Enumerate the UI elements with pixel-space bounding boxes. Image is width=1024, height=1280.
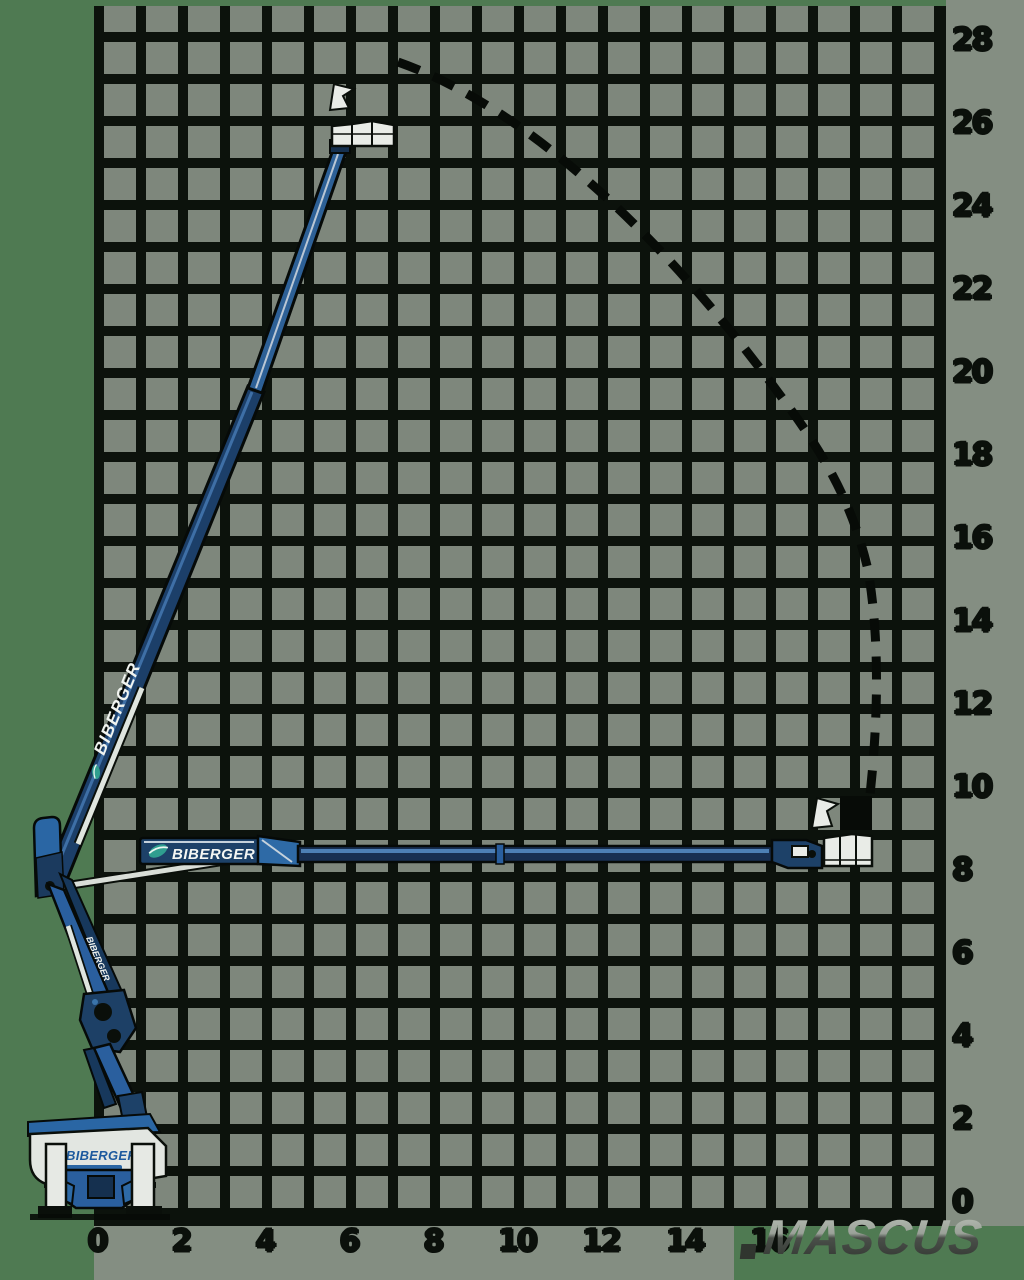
x-axis-label: 2 [151,1224,211,1260]
arm-cylinder [68,926,92,1000]
reach-diagram: 28 26 24 22 20 18 16 14 12 10 8 6 4 2 0 … [0,0,1024,1280]
y-axis-label: 24 [952,186,1018,226]
y-axis-label: 8 [952,850,1018,890]
y-axis-label: 14 [952,601,1018,641]
y-axis-label: 12 [952,684,1018,724]
grid-plot-area [94,6,946,1226]
y-axis-label: 6 [952,933,1018,973]
y-axis-label: 18 [952,435,1018,475]
y-axis-label: 4 [952,1016,1018,1056]
y-axis-label: 20 [952,352,1018,392]
y-axis-label: 28 [952,20,1018,60]
mascus-logo-text: MASCUS [761,1210,985,1266]
turret [34,817,64,898]
y-axis-label: 10 [952,767,1018,807]
x-axis-label: 6 [319,1224,379,1260]
mascus-watermark: MASCUS [739,1210,985,1266]
y-axis-label: 16 [952,518,1018,558]
mascus-dot-icon [740,1244,757,1259]
y-axis-label: 26 [952,103,1018,143]
x-axis-label: 14 [655,1224,715,1260]
x-axis-label: 4 [235,1224,295,1260]
y-axis-strip: 28 26 24 22 20 18 16 14 12 10 8 6 4 2 0 [946,0,1024,1226]
y-axis-label: 22 [952,269,1018,309]
x-axis-label: 0 [67,1224,127,1260]
x-axis-label: 10 [487,1224,547,1260]
outrigger-leg-left [46,1144,66,1208]
biberger-leaf-icon [44,1143,65,1160]
x-axis-label: 12 [571,1224,631,1260]
x-axis-label: 8 [403,1224,463,1260]
y-axis-label: 2 [952,1099,1018,1139]
